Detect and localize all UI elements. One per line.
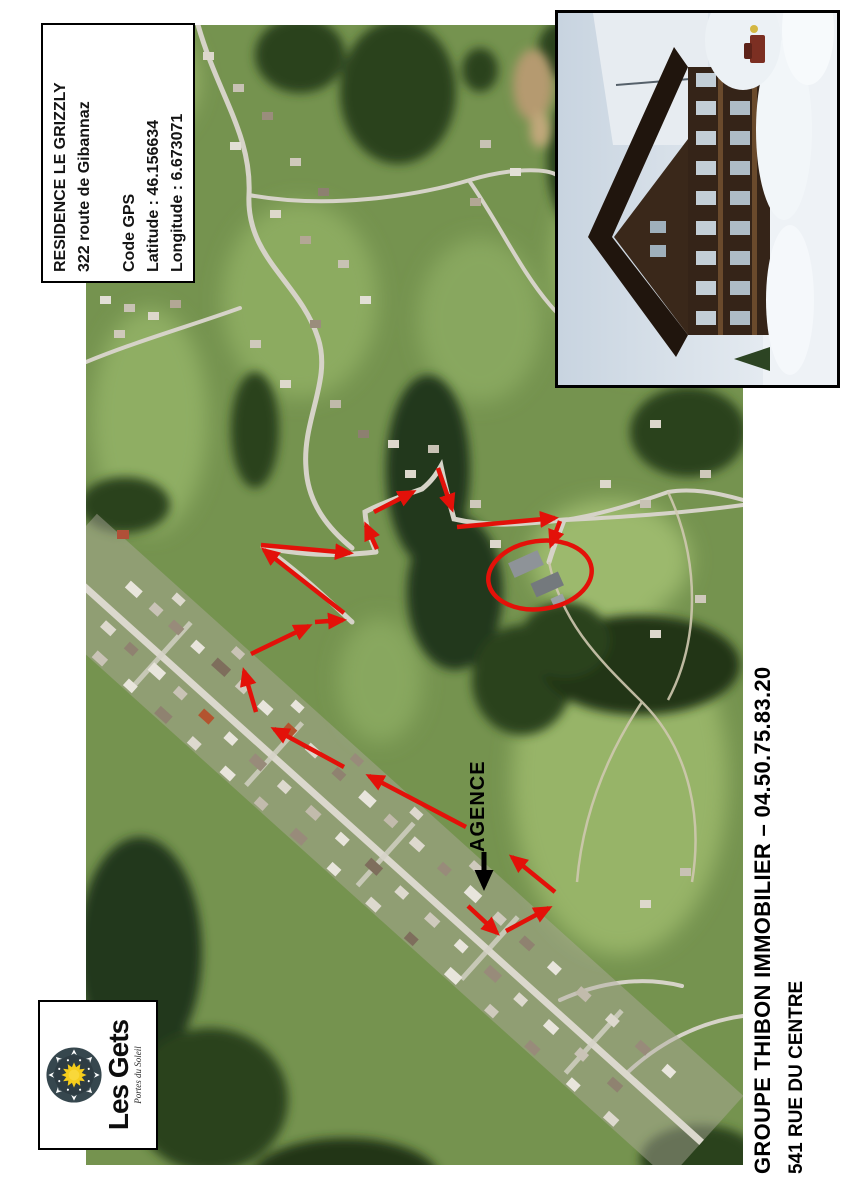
gps-latitude: Latitude : 46.156634 [142,29,166,272]
gps-heading: Code GPS [118,29,142,272]
les-gets-sun-emblem [45,1046,103,1104]
resort-logo-tagline: Portes du Soleil [133,1046,143,1104]
resort-logo-box: Les Gets Portes du Soleil [38,1000,158,1150]
agency-label-box: AGENCE [467,766,497,852]
agency-footer: GROUPE THIBON IMMOBILIER – 04.50.75.83.2… [750,650,824,1174]
chalet-photo [558,13,837,385]
residence-title: RESIDENCE LE GRIZZLY [49,29,73,272]
residence-photo-inset [555,10,840,388]
agency-label: AGENCE [467,766,497,852]
agency-contact-line: GROUPE THIBON IMMOBILIER – 04.50.75.83.2… [750,650,776,1174]
access-map-document: RESIDENCE LE GRIZZLY 322 route de Gibann… [0,0,848,1200]
resort-logo-name: Les Gets [105,1020,133,1130]
agency-address-line: 541 RUE DU CENTRE [786,650,808,1174]
gps-info-box: RESIDENCE LE GRIZZLY 322 route de Gibann… [41,23,195,283]
gps-longitude: Longitude : 6.673071 [166,29,190,272]
residence-address: 322 route de Gibannaz [73,29,97,272]
